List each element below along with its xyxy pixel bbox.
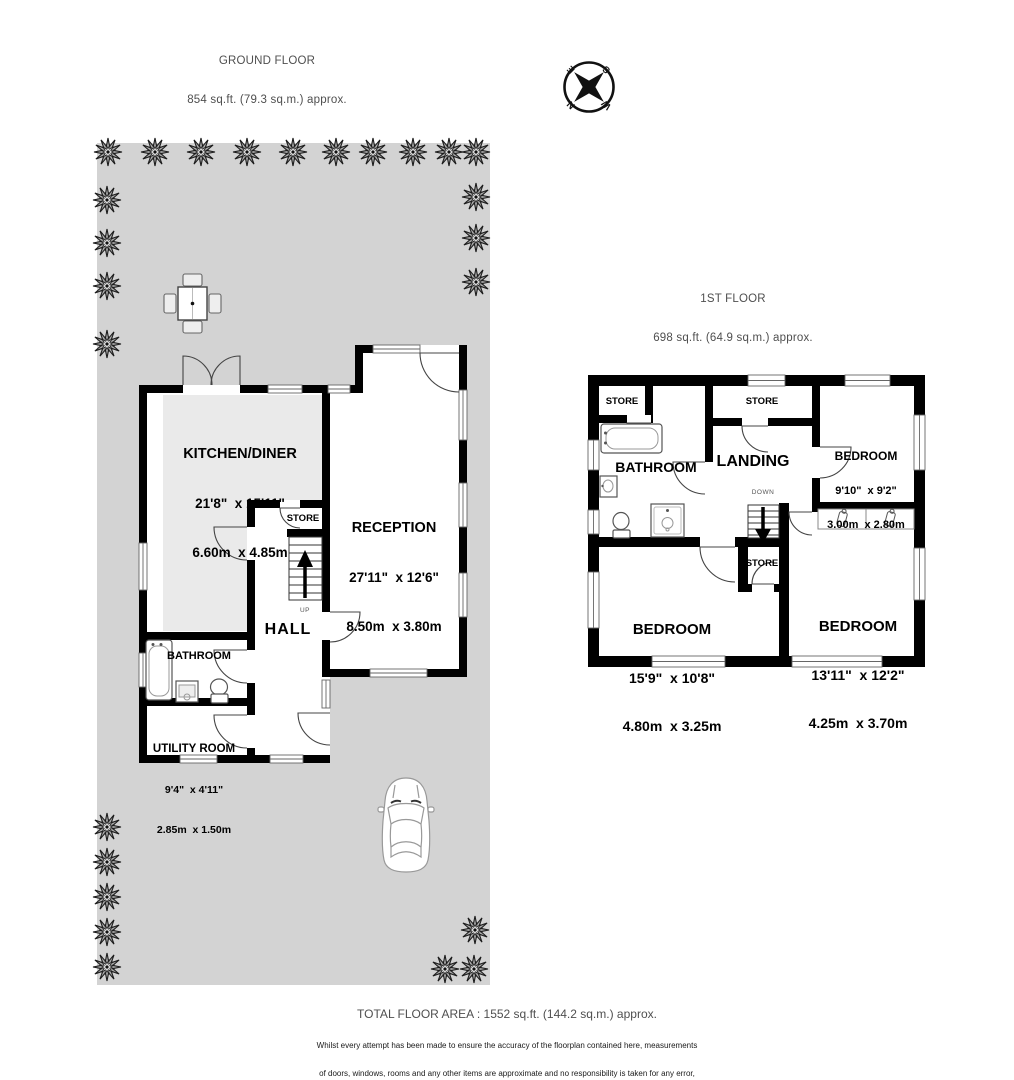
- disclaimer-line-1: Whilst every attempt has been made to en…: [315, 1041, 700, 1050]
- bedroom-bl-imperial: 15'9" x 10'8": [623, 670, 722, 686]
- bedroom-bl-metric: 4.80m x 3.25m: [623, 718, 722, 734]
- bedroom-br-metric: 4.25m x 3.70m: [809, 715, 908, 731]
- compass-icon: E S N W: [559, 57, 618, 116]
- sink-icon: [176, 681, 198, 702]
- bath-icon: [146, 640, 172, 700]
- first-floor-title: 1ST FLOOR: [653, 293, 813, 306]
- bathtub-icon: [601, 424, 662, 453]
- room-label-bathroom-ground: BATHROOM: [167, 650, 231, 662]
- room-label-bedroom-bottom-left: BEDROOM 15'9" x 10'8" 4.80m x 3.25m: [623, 590, 722, 750]
- first-floor-header: 1ST FLOOR 698 sq.ft. (64.9 sq.m.) approx…: [653, 267, 813, 358]
- bedroom-bl-name: BEDROOM: [623, 622, 722, 638]
- corner-sink-icon: [600, 476, 617, 497]
- car-icon: [378, 778, 434, 872]
- bedroom-br-name: BEDROOM: [809, 619, 908, 635]
- stairs-up-label: UP: [300, 607, 310, 614]
- floorplan-page: E S N W GROUND FLOOR 854 sq.ft. (79.3 sq…: [0, 0, 1014, 1080]
- room-label-landing: LANDING: [717, 453, 790, 471]
- bedroom-tr-name: BEDROOM: [827, 451, 905, 463]
- room-label-kitchen: KITCHEN/DINER 21'8" x 15'11" 6.60m x 4.8…: [183, 413, 297, 578]
- reception-name: RECEPTION: [346, 520, 441, 537]
- utility-metric: 2.85m x 1.50m: [153, 824, 235, 838]
- toilet-icon-first: [613, 513, 630, 539]
- disclaimer-line-2: of doors, windows, rooms and any other i…: [315, 1069, 700, 1078]
- room-label-store-top: STORE: [746, 396, 779, 407]
- toilet-icon: [211, 679, 229, 703]
- bedroom-tr-metric: 3.00m x 2.80m: [827, 520, 905, 532]
- room-label-bedroom-top-right: BEDROOM 9'10" x 9'2" 3.00m x 2.80m: [827, 428, 905, 543]
- room-label-bathroom-first: BATHROOM: [615, 459, 696, 475]
- kitchen-imperial: 21'8" x 15'11": [183, 496, 297, 513]
- room-label-hall: HALL: [265, 621, 312, 639]
- kitchen-metric: 6.60m x 4.85m: [183, 545, 297, 562]
- reception-imperial: 27'11" x 12'6": [346, 570, 441, 587]
- room-label-reception: RECEPTION 27'11" x 12'6" 8.50m x 3.80m: [346, 487, 441, 652]
- stairs-down-icon: [748, 505, 779, 543]
- room-label-bedroom-bottom-right: BEDROOM 13'11" x 12'2" 4.25m x 3.70m: [809, 587, 908, 747]
- reception-metric: 8.50m x 3.80m: [346, 619, 441, 636]
- total-floor-area: TOTAL FLOOR AREA : 1552 sq.ft. (144.2 sq…: [357, 1007, 657, 1021]
- ground-floor-title: GROUND FLOOR: [187, 55, 347, 68]
- bedroom-br-imperial: 13'11" x 12'2": [809, 667, 908, 683]
- first-floor-area: 698 sq.ft. (64.9 sq.m.) approx.: [653, 332, 813, 345]
- kitchen-name: KITCHEN/DINER: [183, 446, 297, 463]
- room-label-store-mid: STORE: [746, 558, 779, 569]
- disclaimer: Whilst every attempt has been made to en…: [315, 1023, 700, 1080]
- ground-floor-area: 854 sq.ft. (79.3 sq.m.) approx.: [187, 94, 347, 107]
- bedroom-tr-imperial: 9'10" x 9'2": [827, 486, 905, 498]
- sink-unit-icon: [651, 504, 684, 537]
- stairs-down-label: DOWN: [752, 489, 775, 496]
- utility-name: UTILITY ROOM: [153, 743, 235, 757]
- room-label-utility: UTILITY ROOM 9'4" x 4'11" 2.85m x 1.50m: [153, 716, 235, 851]
- utility-imperial: 9'4" x 4'11": [153, 784, 235, 798]
- room-label-store-ground: STORE: [287, 513, 320, 524]
- room-label-store-left: STORE: [606, 396, 639, 407]
- ground-floor-header: GROUND FLOOR 854 sq.ft. (79.3 sq.m.) app…: [187, 29, 347, 120]
